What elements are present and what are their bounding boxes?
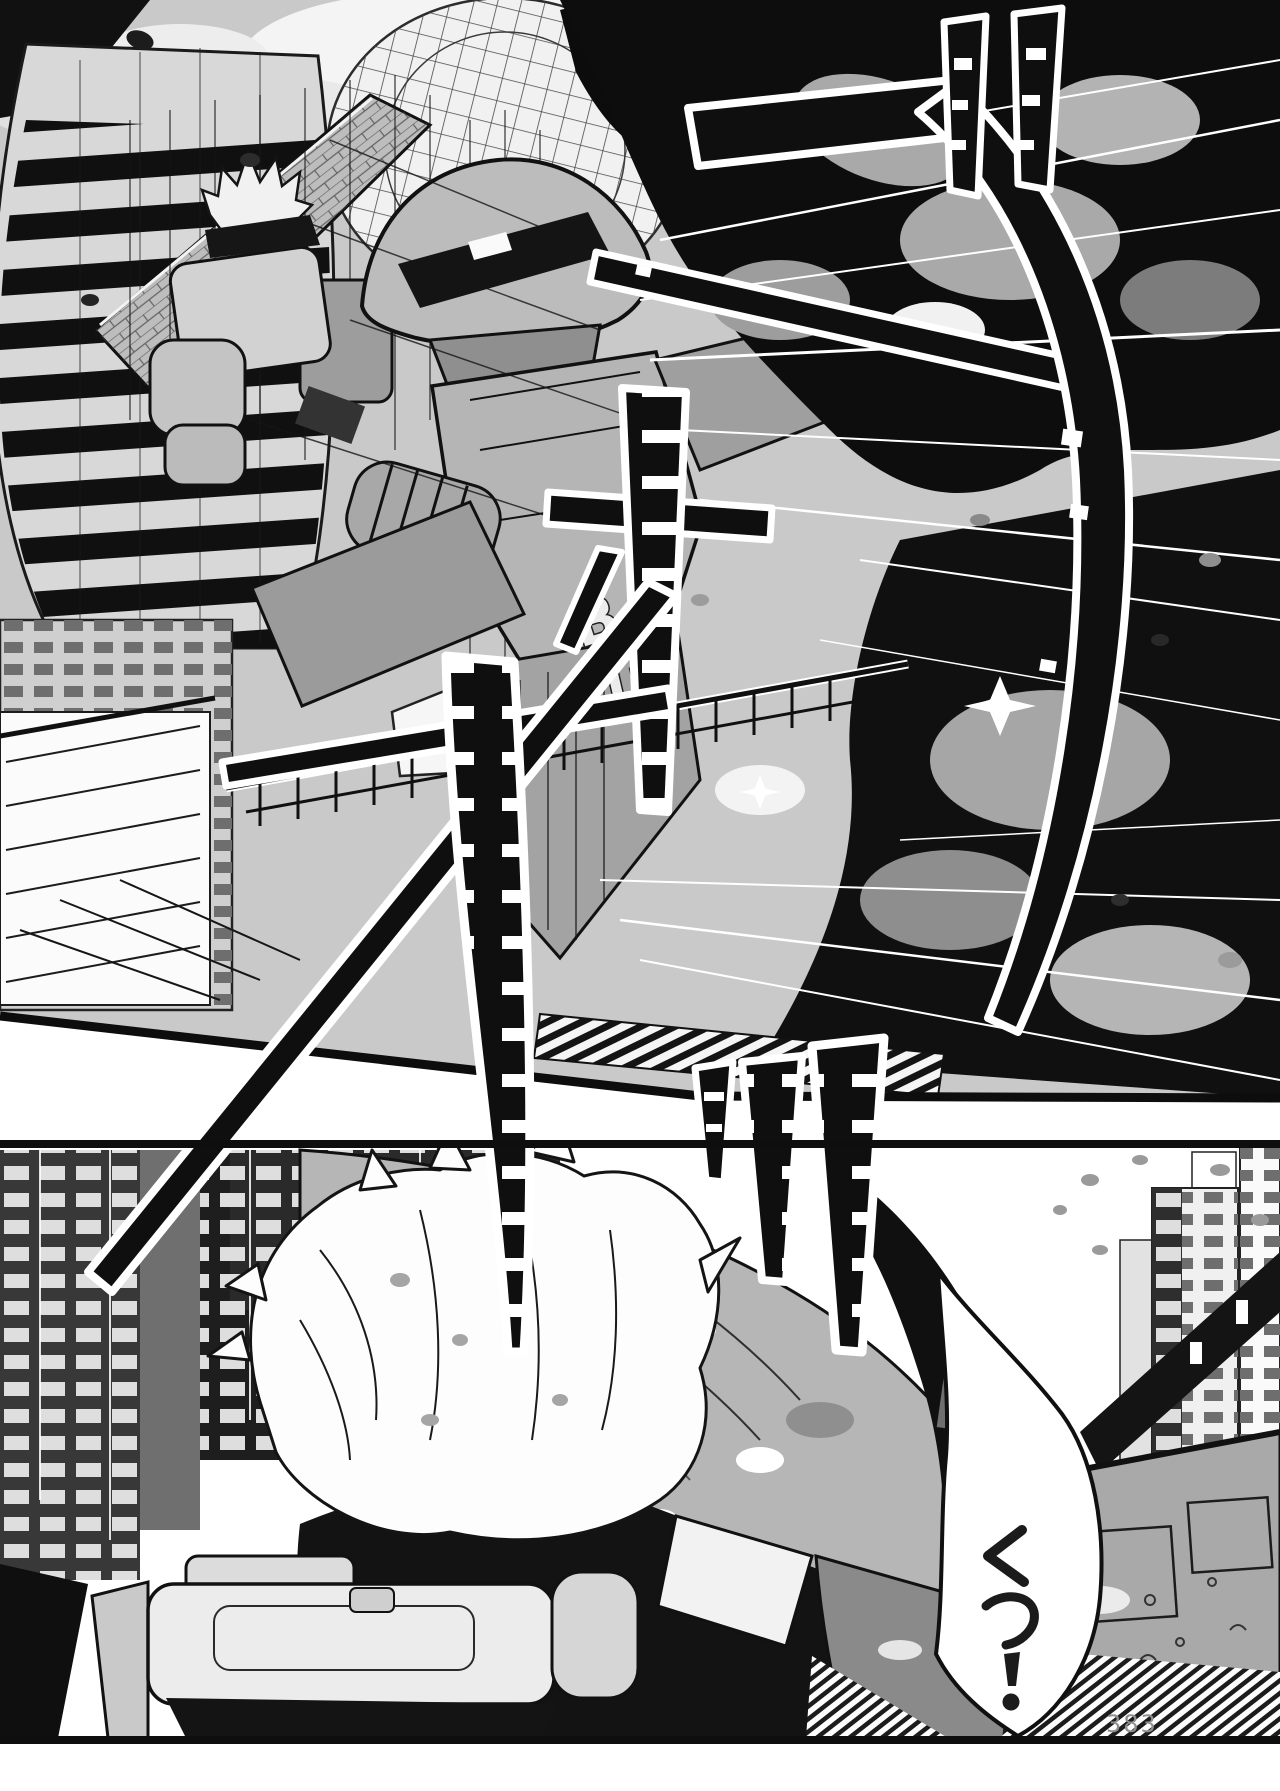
manga-artwork: B U — [0, 0, 1280, 1791]
panel-1: B U — [0, 0, 1280, 1105]
lower-left-building — [0, 620, 232, 1010]
page-number: 383 — [1106, 1710, 1158, 1738]
manga-page: B U — [0, 0, 1280, 1791]
character-hair — [251, 1153, 719, 1539]
glyph-exclamation-dot — [1003, 1694, 1020, 1711]
